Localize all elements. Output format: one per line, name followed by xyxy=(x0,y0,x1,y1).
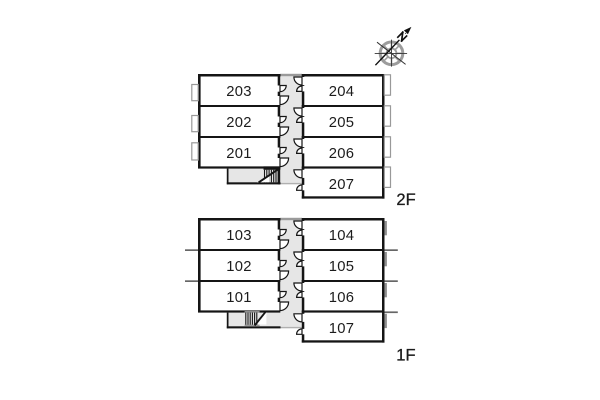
svg-text:107: 107 xyxy=(329,321,355,337)
svg-text:206: 206 xyxy=(329,146,355,162)
svg-text:2F: 2F xyxy=(396,191,415,209)
svg-text:103: 103 xyxy=(226,228,252,244)
svg-text:201: 201 xyxy=(226,146,252,162)
svg-text:204: 204 xyxy=(329,84,355,100)
svg-text:104: 104 xyxy=(329,228,355,244)
svg-text:102: 102 xyxy=(226,259,252,275)
svg-text:207: 207 xyxy=(329,177,355,193)
svg-text:101: 101 xyxy=(226,290,252,306)
svg-text:106: 106 xyxy=(329,290,355,306)
svg-text:203: 203 xyxy=(226,84,252,100)
svg-text:205: 205 xyxy=(329,115,355,131)
svg-text:1F: 1F xyxy=(396,347,415,365)
svg-text:105: 105 xyxy=(329,259,355,275)
svg-text:202: 202 xyxy=(226,115,252,131)
